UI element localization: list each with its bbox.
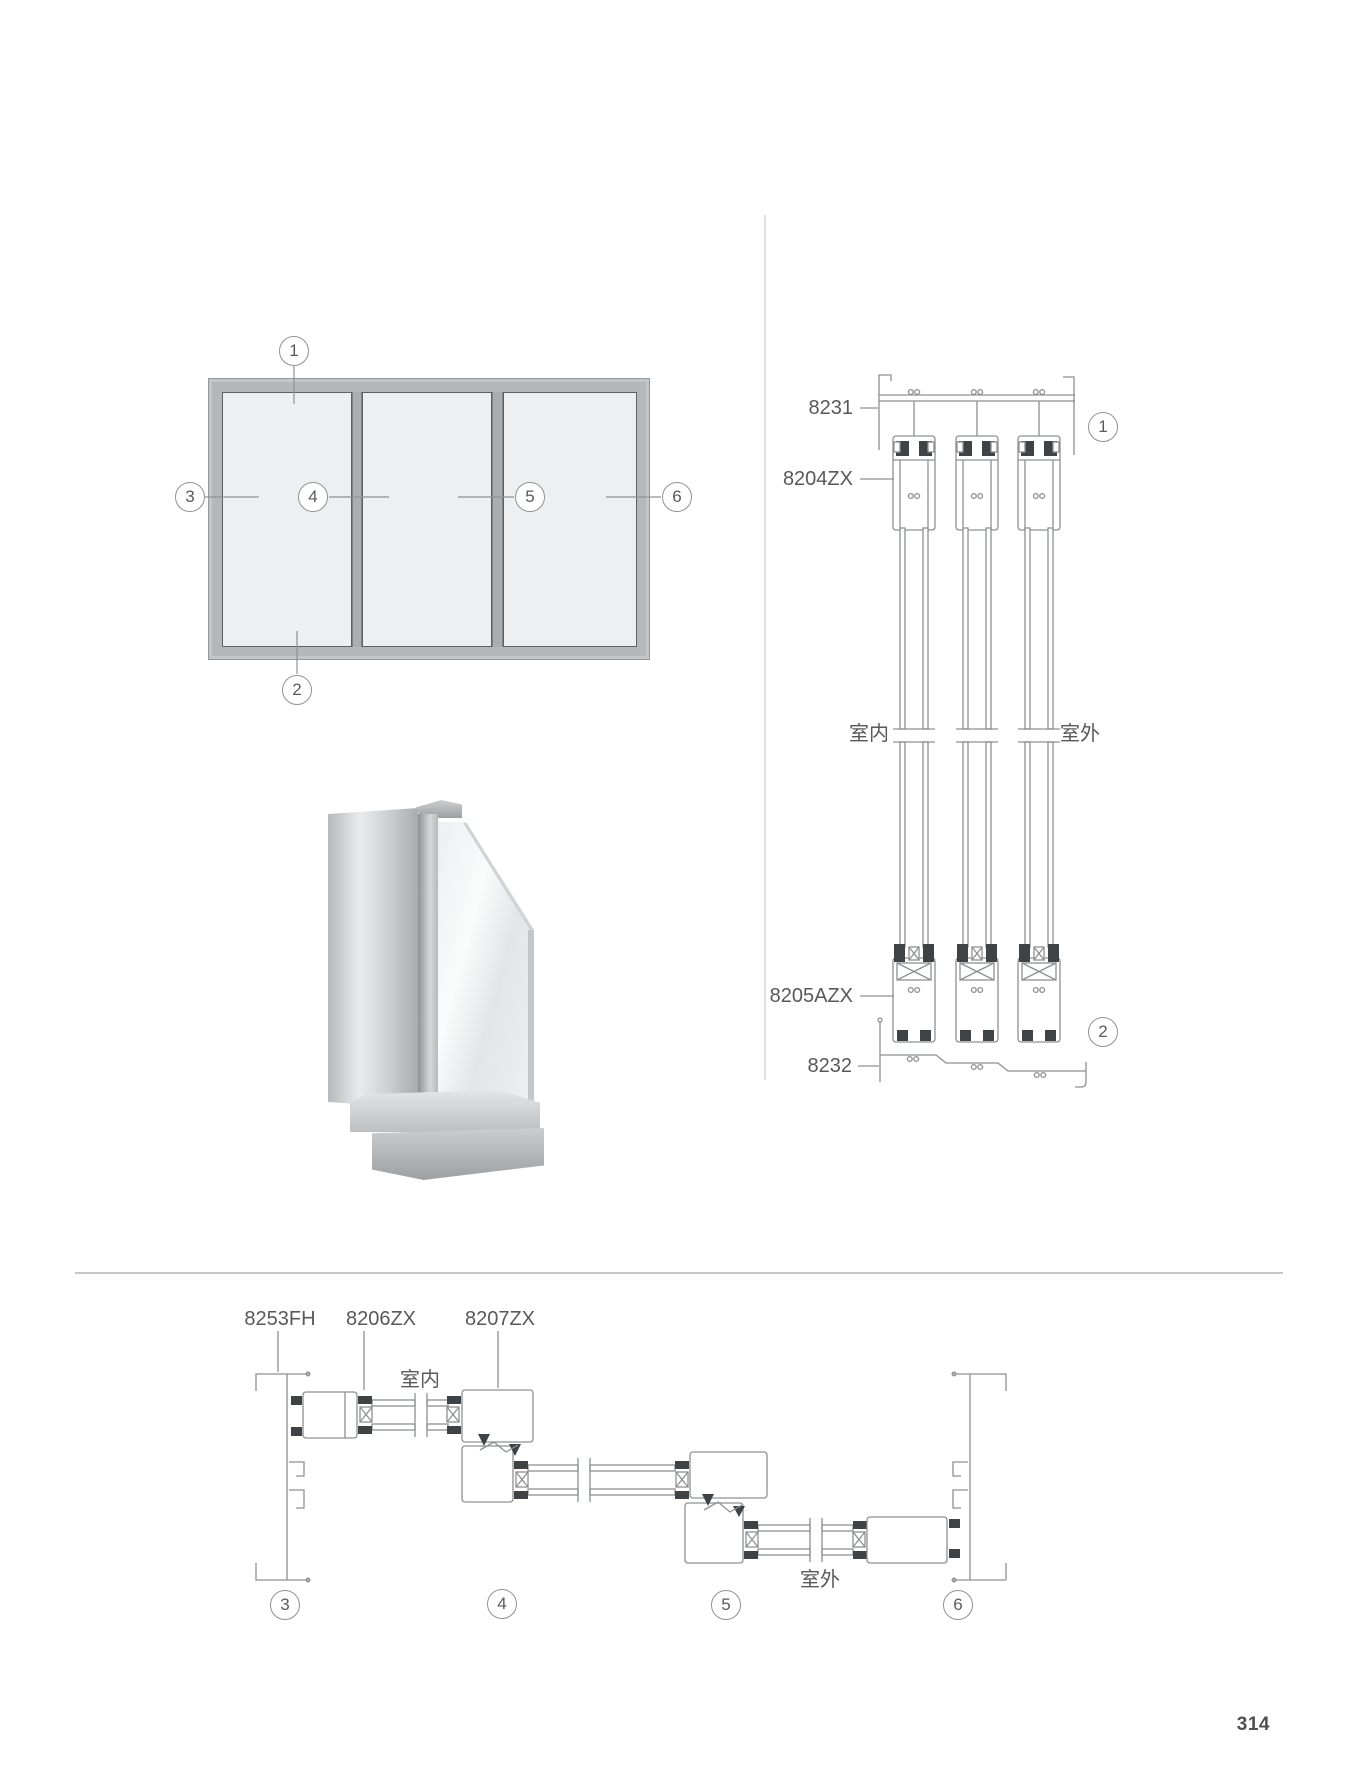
- elevation-callout-4: 4: [298, 482, 328, 512]
- vertical-section-drawing: [858, 375, 1086, 1087]
- callout-number: 5: [721, 1595, 730, 1615]
- glass-panel-3: [503, 392, 637, 647]
- render-sill-lower: [372, 1128, 544, 1180]
- render-jamb-face: [328, 808, 418, 1108]
- profile-label-8231: 8231: [809, 397, 854, 419]
- vsection-indoor-label: 室内: [849, 723, 889, 745]
- profile-label-8205azx: 8205AZX: [770, 985, 853, 1007]
- profile-label-8207zx: 8207ZX: [465, 1308, 535, 1330]
- meeting-stile-2: [492, 392, 503, 647]
- hsection-callout-4: 4: [487, 1589, 517, 1619]
- callout-number: 3: [280, 1595, 289, 1615]
- hsection-callout-6: 6: [943, 1590, 973, 1620]
- elevation-callout-2: 2: [282, 675, 312, 705]
- elevation-callout-1: 1: [279, 336, 309, 366]
- render-glass-right-edge: [528, 930, 534, 1112]
- hsection-indoor-label: 室内: [400, 1369, 440, 1391]
- callout-number: 4: [497, 1594, 506, 1614]
- profile-label-8232: 8232: [808, 1055, 853, 1077]
- profile-label-8206zx: 8206ZX: [346, 1308, 416, 1330]
- callout-number: 4: [308, 487, 317, 507]
- vsection-callout-2: 2: [1088, 1017, 1118, 1047]
- callout-number: 5: [525, 487, 534, 507]
- callout-number: 6: [672, 487, 681, 507]
- callout-number: 6: [953, 1595, 962, 1615]
- vsection-callout-1: 1: [1088, 412, 1118, 442]
- horizontal-section-drawing: [256, 1331, 1006, 1582]
- profile-3d-render: [320, 798, 525, 1186]
- render-sill-upper: [350, 1090, 540, 1132]
- technical-drawing-svg: [0, 0, 1358, 1772]
- meeting-stile-1: [352, 392, 362, 647]
- callout-number: 1: [289, 341, 298, 361]
- vsection-outdoor-label: 室外: [1060, 723, 1100, 745]
- glass-panel-1: [222, 392, 352, 647]
- hsection-callout-3: 3: [270, 1590, 300, 1620]
- section-dividers: [75, 215, 1283, 1273]
- callout-number: 2: [292, 680, 301, 700]
- profile-label-8204zx: 8204ZX: [783, 468, 853, 490]
- callout-number: 1: [1098, 417, 1107, 437]
- hsection-callout-5: 5: [711, 1590, 741, 1620]
- catalog-page: 1 2 3 4 5 6 1 2 3 4 5 6 8231 8204ZX 8205…: [0, 0, 1358, 1772]
- render-glazing-post: [418, 814, 438, 1110]
- elevation-callout-6: 6: [662, 482, 692, 512]
- profile-label-8253fh: 8253FH: [244, 1308, 315, 1330]
- hsection-outdoor-label: 室外: [800, 1569, 840, 1591]
- page-number: 314: [1237, 1714, 1270, 1736]
- render-glass-pane: [438, 822, 534, 1112]
- glass-panel-2: [362, 392, 492, 647]
- callout-number: 2: [1098, 1022, 1107, 1042]
- callout-number: 3: [185, 487, 194, 507]
- elevation-callout-3: 3: [175, 482, 205, 512]
- elevation-callout-5: 5: [515, 482, 545, 512]
